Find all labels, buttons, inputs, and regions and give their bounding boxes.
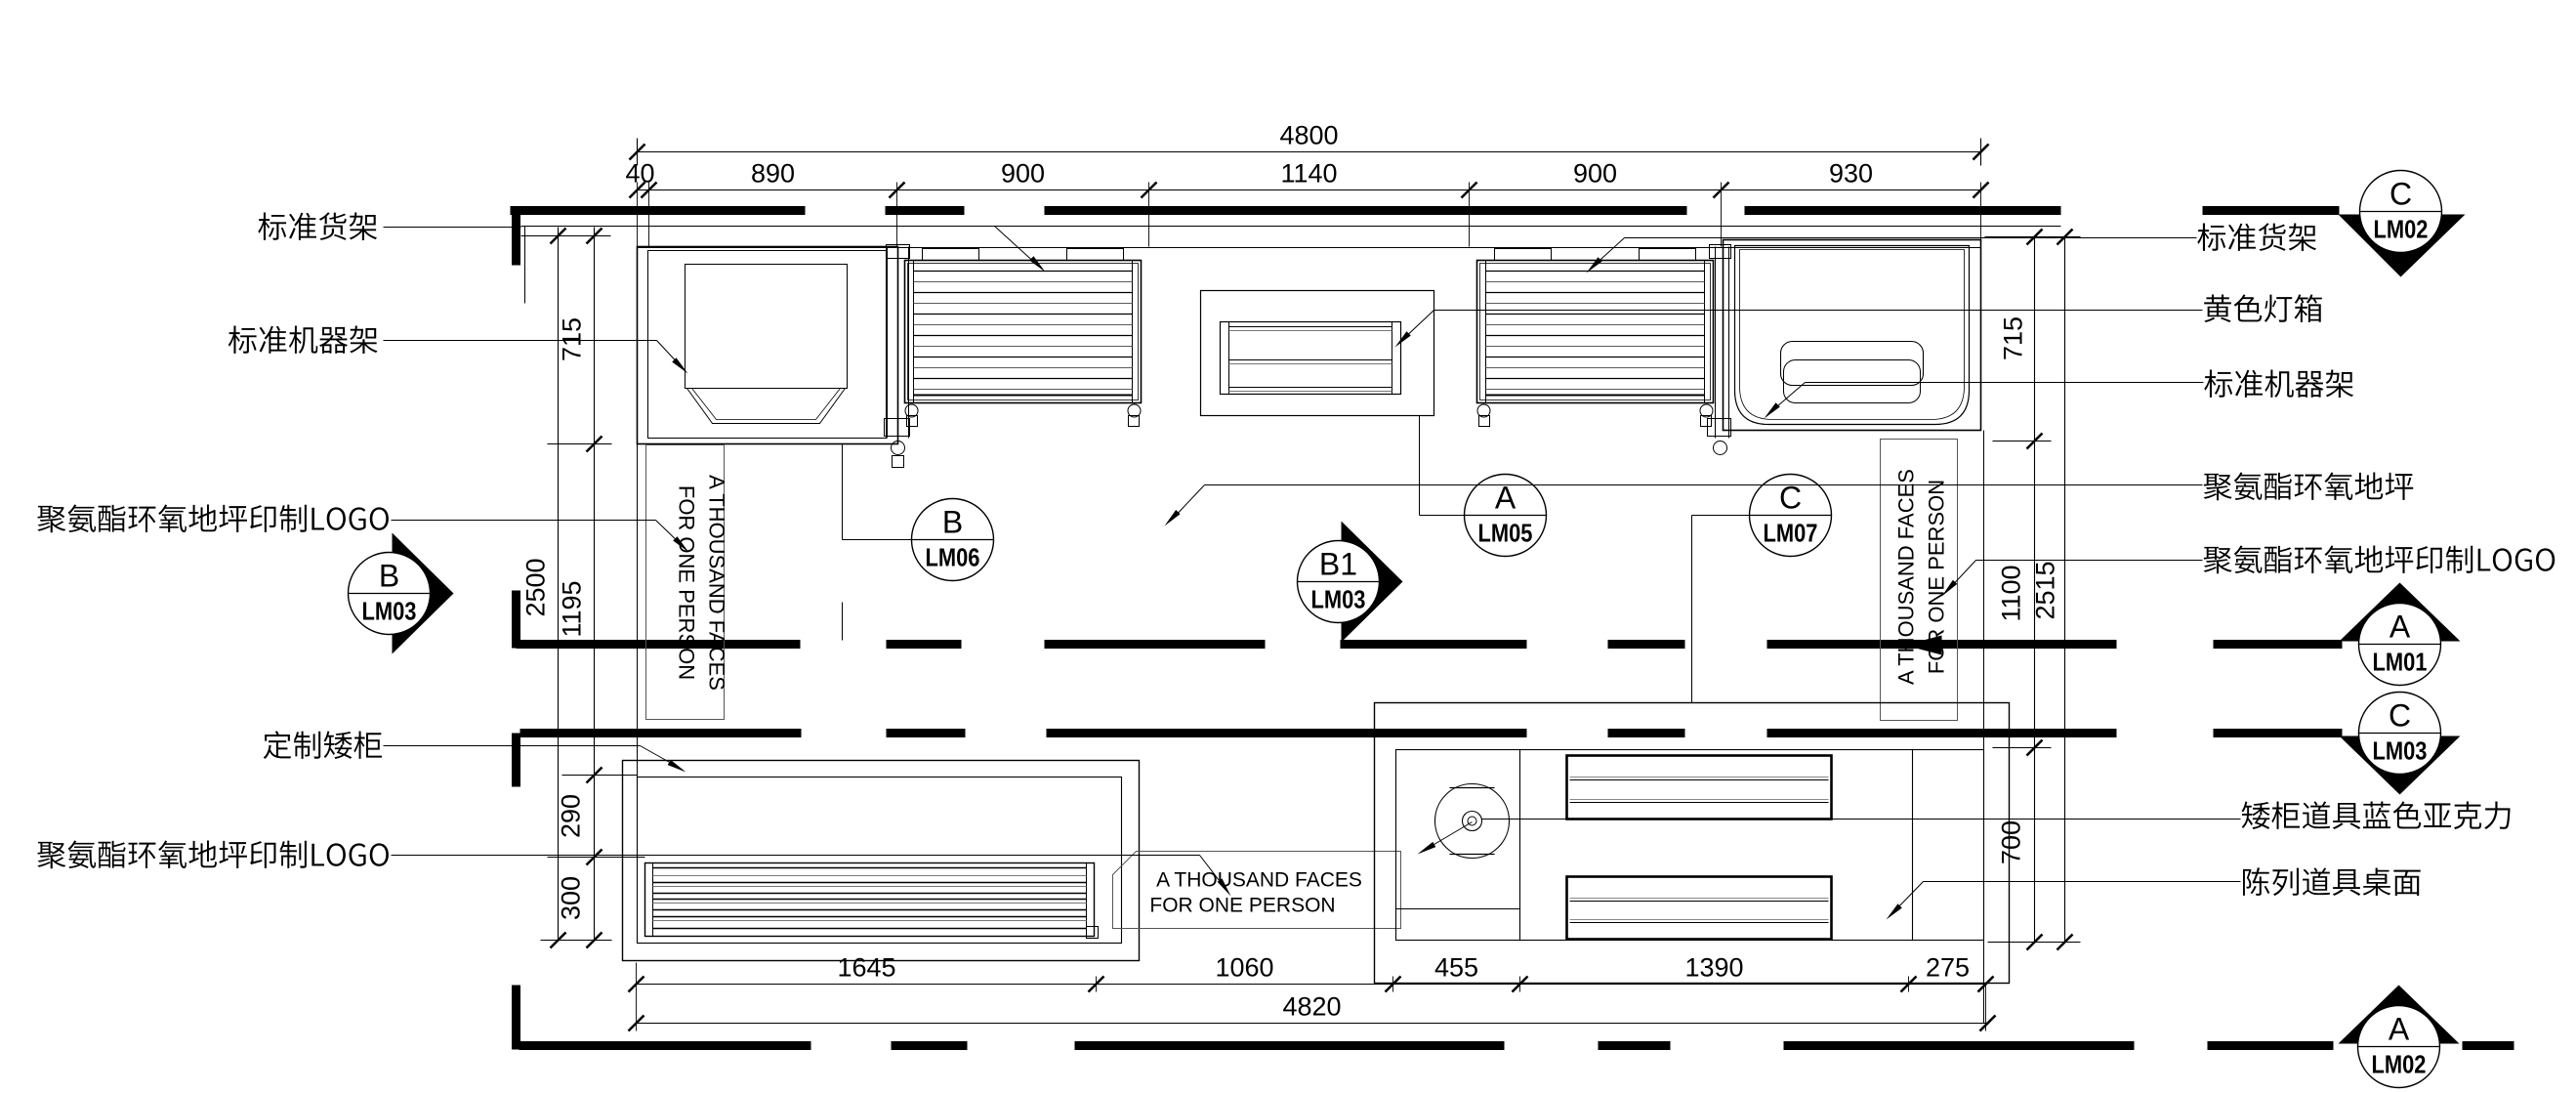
svg-text:A: A	[2389, 1012, 2410, 1047]
svg-text:715: 715	[558, 317, 587, 361]
svg-text:LM03: LM03	[2373, 736, 2428, 766]
svg-text:900: 900	[1001, 159, 1045, 189]
svg-text:C: C	[2389, 698, 2411, 734]
svg-text:B: B	[942, 505, 963, 540]
svg-text:FOR ONE PERSON: FOR ONE PERSON	[1149, 895, 1335, 917]
svg-text:930: 930	[1829, 159, 1873, 189]
svg-text:LM05: LM05	[1478, 519, 1533, 548]
svg-text:LM02: LM02	[2372, 1050, 2427, 1079]
svg-text:B: B	[379, 559, 399, 594]
svg-text:FOR ONE PERSON: FOR ONE PERSON	[675, 485, 699, 680]
svg-text:2515: 2515	[2031, 561, 2060, 619]
svg-text:LM06: LM06	[926, 543, 980, 572]
svg-text:1195: 1195	[558, 580, 587, 637]
svg-text:1645: 1645	[837, 953, 895, 983]
svg-text:2500: 2500	[521, 558, 551, 616]
svg-text:290: 290	[557, 794, 586, 838]
svg-text:1100: 1100	[1997, 565, 2026, 621]
svg-text:715: 715	[1999, 316, 2028, 360]
svg-text:4800: 4800	[1279, 121, 1338, 150]
svg-text:LM03: LM03	[1311, 585, 1366, 614]
svg-text:700: 700	[1997, 820, 2026, 864]
svg-text:1140: 1140	[1280, 159, 1337, 189]
svg-text:A: A	[2389, 610, 2411, 645]
svg-text:900: 900	[1573, 159, 1617, 189]
svg-text:LM03: LM03	[362, 597, 417, 626]
svg-text:455: 455	[1434, 953, 1478, 983]
svg-text:LM02: LM02	[2374, 215, 2429, 244]
svg-text:1390: 1390	[1684, 953, 1743, 983]
svg-text:LM07: LM07	[1764, 519, 1818, 548]
svg-text:4820: 4820	[1282, 992, 1341, 1022]
svg-text:LM01: LM01	[2373, 648, 2428, 677]
svg-text:A THOUSAND FACES: A THOUSAND FACES	[705, 475, 729, 691]
svg-text:275: 275	[1926, 953, 1970, 983]
svg-text:40: 40	[625, 159, 654, 189]
svg-text:890: 890	[751, 159, 795, 189]
svg-text:B1: B1	[1319, 547, 1357, 582]
svg-text:A THOUSAND FACES: A THOUSAND FACES	[1894, 469, 1919, 685]
svg-text:1060: 1060	[1215, 953, 1273, 983]
svg-text:A THOUSAND FACES: A THOUSAND FACES	[1156, 869, 1362, 892]
svg-text:300: 300	[557, 876, 586, 920]
svg-text:C: C	[2389, 177, 2412, 212]
